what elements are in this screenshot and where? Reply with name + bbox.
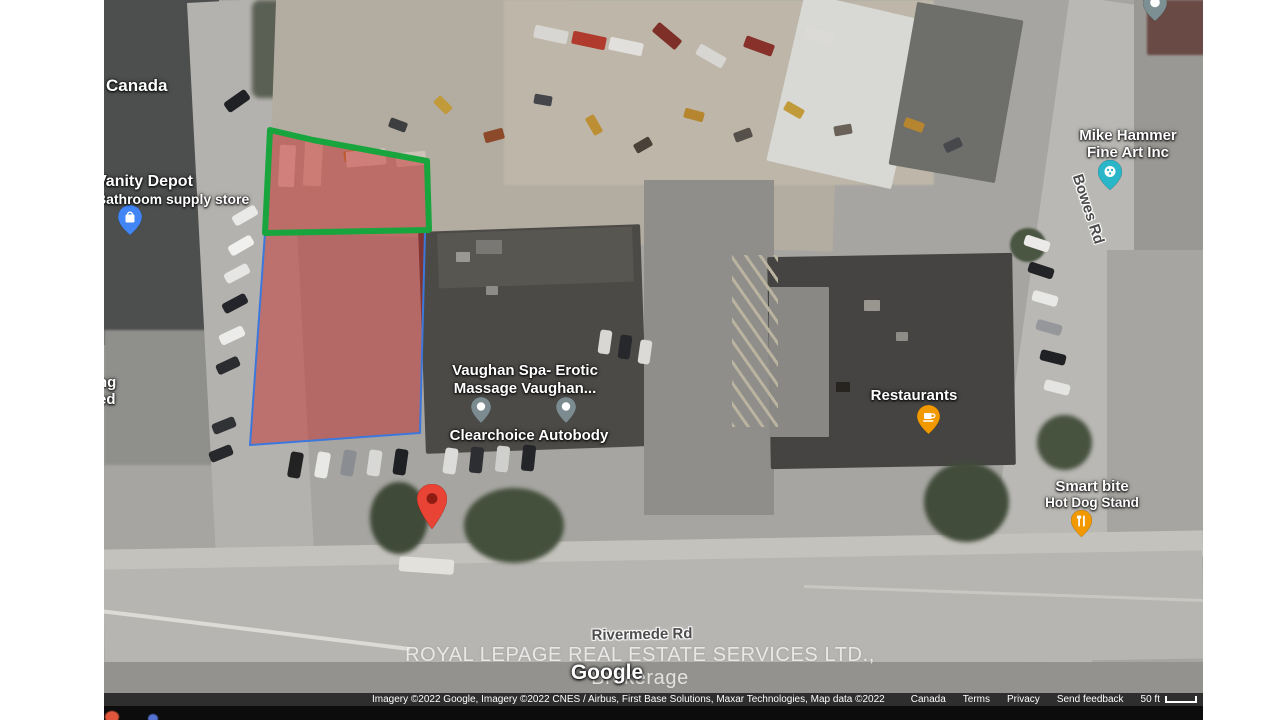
privacy-link[interactable]: Privacy bbox=[1007, 694, 1040, 705]
mike-hammer-label[interactable]: Mike Hammer Fine Art Inc bbox=[1079, 127, 1177, 161]
green-outline-parcel bbox=[265, 130, 429, 233]
send-feedback-link[interactable]: Send feedback bbox=[1057, 694, 1124, 705]
generic-pin-icon bbox=[471, 397, 491, 423]
vanity-depot-subtitle: Bathroom supply store bbox=[104, 191, 249, 207]
red-marker-icon bbox=[417, 484, 447, 529]
google-logo-partial bbox=[105, 711, 119, 720]
coffee-cup-pin-icon bbox=[917, 405, 940, 434]
top-right-pin[interactable] bbox=[1143, 0, 1167, 26]
scale-bar bbox=[1165, 696, 1197, 703]
generic-pin-icon bbox=[556, 397, 576, 423]
attribution-bar: Imagery ©2022 Google, Imagery ©2022 CNES… bbox=[104, 693, 1203, 706]
region-link[interactable]: Canada bbox=[911, 694, 946, 705]
generic-pin-icon bbox=[1143, 0, 1167, 21]
screenshot-stage: Canada Vanity Depot Bathroom supply stor… bbox=[0, 0, 1280, 720]
clearchoice-pin[interactable] bbox=[556, 397, 576, 428]
smart-bite-label[interactable]: Smart bite Hot Dog Stand bbox=[1045, 478, 1139, 510]
store-pin-icon bbox=[118, 205, 142, 235]
imagery-credit: Imagery ©2022 Google, Imagery ©2022 CNES… bbox=[372, 694, 885, 705]
restaurants-label[interactable]: Restaurants bbox=[871, 387, 958, 404]
bottom-black-strip bbox=[104, 706, 1203, 720]
parcel-overlay bbox=[104, 0, 1203, 720]
terms-link[interactable]: Terms bbox=[963, 694, 990, 705]
smart-bite-pin[interactable] bbox=[1071, 510, 1092, 542]
fork-knife-pin-icon bbox=[1071, 510, 1092, 537]
clipped-left-label: ng ed bbox=[104, 374, 116, 408]
vanity-depot-pin[interactable] bbox=[118, 205, 142, 240]
map-scale: 50 ft bbox=[1141, 694, 1197, 705]
vanity-depot-name: Vanity Depot bbox=[104, 173, 249, 191]
art-palette-pin-icon bbox=[1098, 160, 1122, 190]
red-highlight-parcel bbox=[250, 231, 425, 445]
google-logo[interactable]: Google bbox=[571, 661, 643, 685]
vaughan-spa-pin[interactable] bbox=[471, 397, 491, 428]
clearchoice-label[interactable]: Clearchoice Autobody bbox=[450, 427, 609, 444]
scale-label: 50 ft bbox=[1141, 694, 1160, 705]
rivermede-rd-label: Rivermede Rd bbox=[591, 625, 692, 644]
mike-hammer-pin[interactable] bbox=[1098, 160, 1122, 195]
google-logo-partial bbox=[148, 714, 158, 720]
country-label: Canada bbox=[106, 76, 167, 96]
property-marker-pin[interactable] bbox=[417, 484, 447, 534]
vaughan-spa-label[interactable]: Vaughan Spa- Erotic Massage Vaughan... bbox=[452, 362, 598, 398]
satellite-map[interactable]: Canada Vanity Depot Bathroom supply stor… bbox=[104, 0, 1203, 720]
vanity-depot-label[interactable]: Vanity Depot Bathroom supply store bbox=[104, 173, 249, 207]
restaurants-pin[interactable] bbox=[917, 405, 940, 439]
